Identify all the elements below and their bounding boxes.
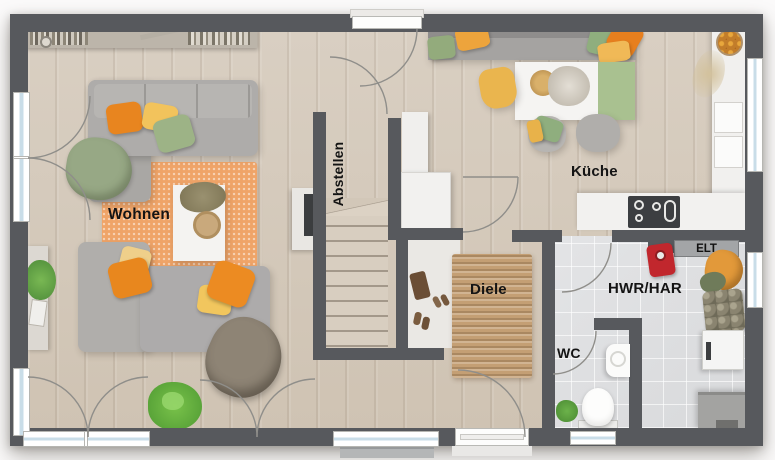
window-french-door-left-mullion [13, 156, 30, 159]
table-tray [193, 211, 221, 239]
books-right [188, 30, 250, 45]
window-hwr-right [747, 252, 763, 308]
table-runner-green [598, 62, 635, 120]
counter-cabinet-2 [714, 136, 743, 168]
plant-sideboard [26, 260, 56, 300]
room-label-kueche: Küche [571, 163, 618, 180]
wc-plant [556, 400, 578, 422]
wall-diele-hwr [542, 230, 555, 428]
burner-3 [652, 202, 661, 211]
burner-oval [664, 200, 676, 222]
wardrobe-tall [402, 112, 428, 172]
pillow-orange [105, 101, 144, 136]
entrance-door [352, 16, 422, 29]
bench-pillow-green [427, 35, 456, 61]
books-left [30, 30, 88, 45]
room-label-abstellen: Abstellen [330, 129, 346, 219]
room-label-wohnen: Wohnen [108, 206, 170, 224]
wall-stairs-right [388, 118, 401, 240]
plant-floor-big-highlight [162, 392, 184, 410]
window-left-lower [13, 368, 30, 436]
wc-sink-basin [610, 351, 626, 367]
laundry-basket [702, 288, 746, 334]
washing-machine-slot [706, 342, 711, 360]
room-label-diele: Diele [470, 281, 507, 298]
toilet-bowl [582, 388, 614, 426]
room-label-hwr: HWR/HAR [608, 280, 682, 297]
exterior-step [340, 447, 434, 458]
wall-stairs-left [313, 112, 326, 360]
red-appliance-dial [655, 250, 666, 261]
wall-wc-right [629, 318, 642, 428]
dining-flowers [548, 66, 590, 106]
shelf-clock [40, 36, 52, 48]
window-wc [570, 431, 616, 445]
fruit-bowl [716, 29, 743, 56]
burner-2 [635, 214, 643, 222]
wall-niche [396, 240, 408, 348]
hall-rug [452, 254, 532, 378]
burner-1 [634, 200, 644, 210]
terrace-door-bottom-left-mullion [84, 431, 88, 447]
wall-stairs-bottom [313, 348, 444, 360]
front-door-leaf [460, 434, 524, 440]
window-kitchen-right [747, 58, 763, 172]
wardrobe-wide [401, 172, 451, 230]
counter-cabinet-1 [714, 102, 743, 133]
floor-plan: ELT W [0, 0, 775, 460]
room-label-wc: WC [557, 345, 581, 361]
terrace-window-bottom-mid [333, 431, 439, 447]
chair-gray-2 [576, 114, 620, 152]
stairs [326, 212, 388, 348]
wall-stairs-stub [388, 228, 463, 240]
front-door-sill [452, 446, 532, 456]
